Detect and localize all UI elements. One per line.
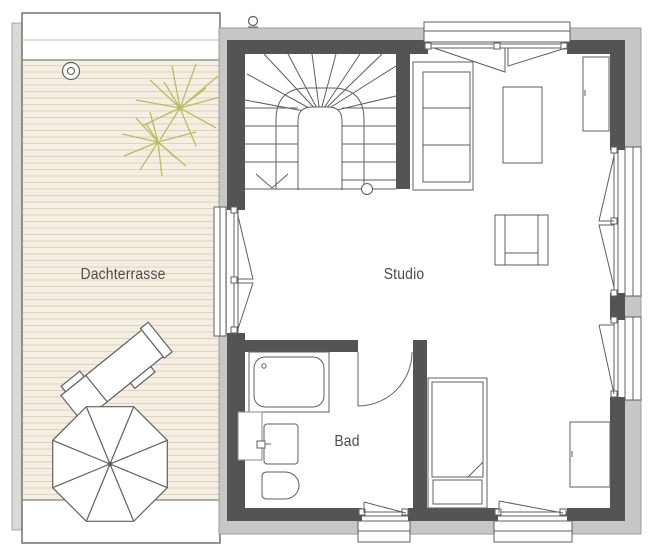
newel-post	[362, 184, 373, 195]
pillow	[433, 480, 482, 504]
studio-label: Studio	[384, 266, 425, 283]
terrace-label: Dachterrasse	[80, 266, 165, 283]
parasol-icon	[53, 407, 168, 522]
drain-icon	[63, 63, 80, 80]
bath-label: Bad	[334, 433, 359, 450]
sofa-shelf-icon	[413, 62, 473, 190]
bed-icon	[428, 378, 487, 508]
armchair-icon	[495, 215, 548, 265]
sideboard-icon	[570, 422, 610, 487]
toilet-icon	[262, 472, 299, 499]
wall-niche	[238, 412, 262, 460]
roof-vent-icon	[248, 17, 258, 28]
roof-terrace: Dachterrasse	[12, 13, 224, 543]
wardrobe-icon	[583, 57, 609, 131]
window-sill	[424, 22, 570, 42]
bath-wall-right	[413, 340, 427, 508]
bathtub-icon	[249, 352, 329, 412]
bath-wall-top	[244, 340, 358, 352]
coffee-table-icon	[503, 87, 542, 163]
floor-plan: Dachterrasse	[0, 0, 650, 560]
stair-wall	[396, 54, 410, 189]
terrace-side-edge	[12, 23, 22, 530]
